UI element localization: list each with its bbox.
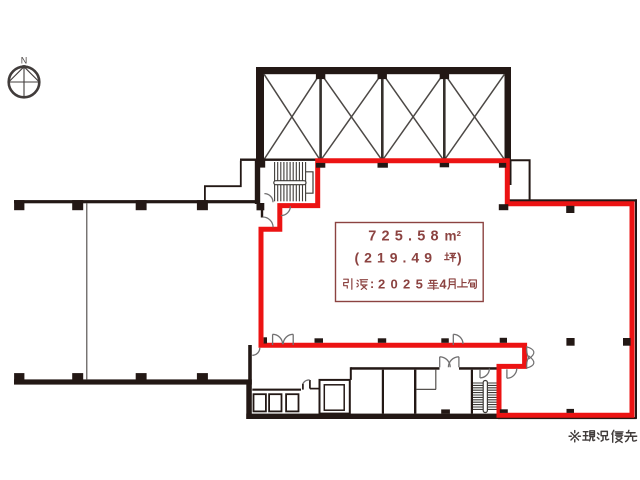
svg-text:m²: m² (445, 229, 462, 244)
svg-text:2025: 2025 (378, 276, 428, 291)
svg-text::: : (370, 277, 374, 291)
svg-text:725.58: 725.58 (368, 229, 444, 245)
svg-text:N: N (21, 56, 28, 66)
svg-text:): ) (457, 250, 462, 266)
svg-text:4: 4 (440, 277, 447, 291)
svg-text:(219.49: (219.49 (355, 250, 437, 266)
